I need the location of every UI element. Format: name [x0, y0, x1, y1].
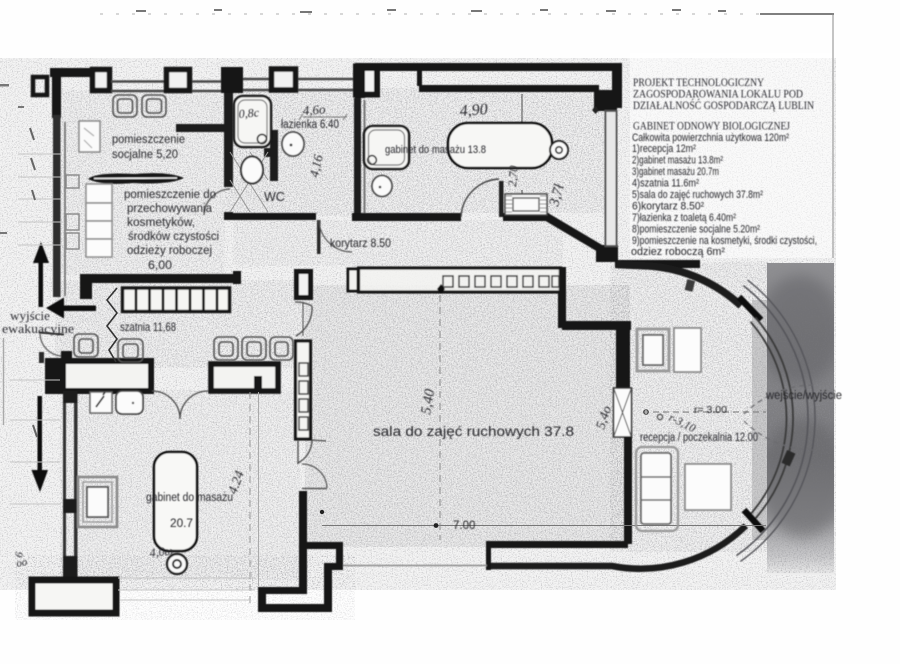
svg-text:2)gabinet masażu 13.8m²: 2)gabinet masażu 13.8m² — [632, 155, 723, 167]
svg-text:20.7: 20.7 — [170, 516, 193, 530]
svg-text:pomieszczenie do: pomieszczenie do — [124, 187, 216, 201]
svg-text:7)łazienka z toaletą 6.40m²: 7)łazienka z toaletą 6.40m² — [632, 212, 736, 224]
svg-text:4,0ω: 4,0ω — [149, 544, 174, 560]
svg-text:gabinet do masażu 13.8: gabinet do masażu 13.8 — [385, 144, 486, 156]
svg-text:socjalne 5,20: socjalne 5,20 — [112, 147, 178, 161]
svg-text:pomieszczenie: pomieszczenie — [112, 132, 185, 146]
svg-text:szatnia 11,68: szatnia 11,68 — [120, 320, 176, 334]
svg-text:gabinet do masażu: gabinet do masażu — [146, 490, 233, 504]
svg-text:korytarz 8.50: korytarz 8.50 — [330, 236, 391, 250]
svg-text:5)sala do zajęć ruchowych 37.8: 5)sala do zajęć ruchowych 37.8m² — [632, 189, 763, 201]
svg-text:GABINET ODNOWY BIOLOGICZNEJ: GABINET ODNOWY BIOLOGICZNEJ — [633, 119, 790, 133]
svg-text:4,6o: 4,6o — [302, 101, 326, 118]
svg-text:1)recepcja 12m²: 1)recepcja 12m² — [632, 143, 696, 155]
svg-text:przechowywania: przechowywania — [127, 201, 212, 215]
svg-text:6)korytarz 8.50²: 6)korytarz 8.50² — [632, 201, 704, 213]
svg-text:8)pomieszczenie socjalne 5.20m: 8)pomieszczenie socjalne 5.20m² — [632, 224, 760, 236]
svg-text:7.00: 7.00 — [453, 520, 475, 532]
svg-text:4)szatnia 11.6m²: 4)szatnia 11.6m² — [632, 178, 699, 190]
svg-text:wejście/wyjście: wejście/wyjście — [765, 390, 842, 402]
svg-text:r= 3.00: r= 3.00 — [694, 404, 727, 416]
svg-text:recepcja / poczekalnia 12.00: recepcja / poczekalnia 12.00 — [640, 432, 758, 444]
svg-text:3)gabinet masażu 20.7m: 3)gabinet masażu 20.7m — [632, 166, 719, 178]
svg-text:łazienka 6.40: łazienka 6.40 — [281, 119, 339, 131]
svg-text:ewakuacyjne: ewakuacyjne — [2, 321, 74, 336]
svg-text:odzieży roboczej: odzieży roboczej — [127, 243, 212, 257]
svg-text:odziez roboczą 6m²: odziez roboczą 6m² — [631, 246, 725, 258]
svg-text:4,90: 4,90 — [459, 101, 488, 120]
svg-text:środków czystości: środków czystości — [128, 229, 219, 243]
svg-text:0,8c: 0,8c — [238, 105, 260, 121]
svg-text:2,70: 2,70 — [505, 165, 521, 187]
svg-text:WC: WC — [264, 190, 285, 204]
svg-text:DZIAŁALNOŚĆ GOSPODARCZĄ LUBLIN: DZIAŁALNOŚĆ GOSPODARCZĄ LUBLIN — [633, 98, 814, 112]
svg-text:sala do zajęć ruchowych 37.8: sala do zajęć ruchowych 37.8 — [373, 424, 574, 439]
svg-text:6,00: 6,00 — [148, 258, 172, 272]
svg-text:kosmetyków,: kosmetyków, — [127, 215, 195, 229]
